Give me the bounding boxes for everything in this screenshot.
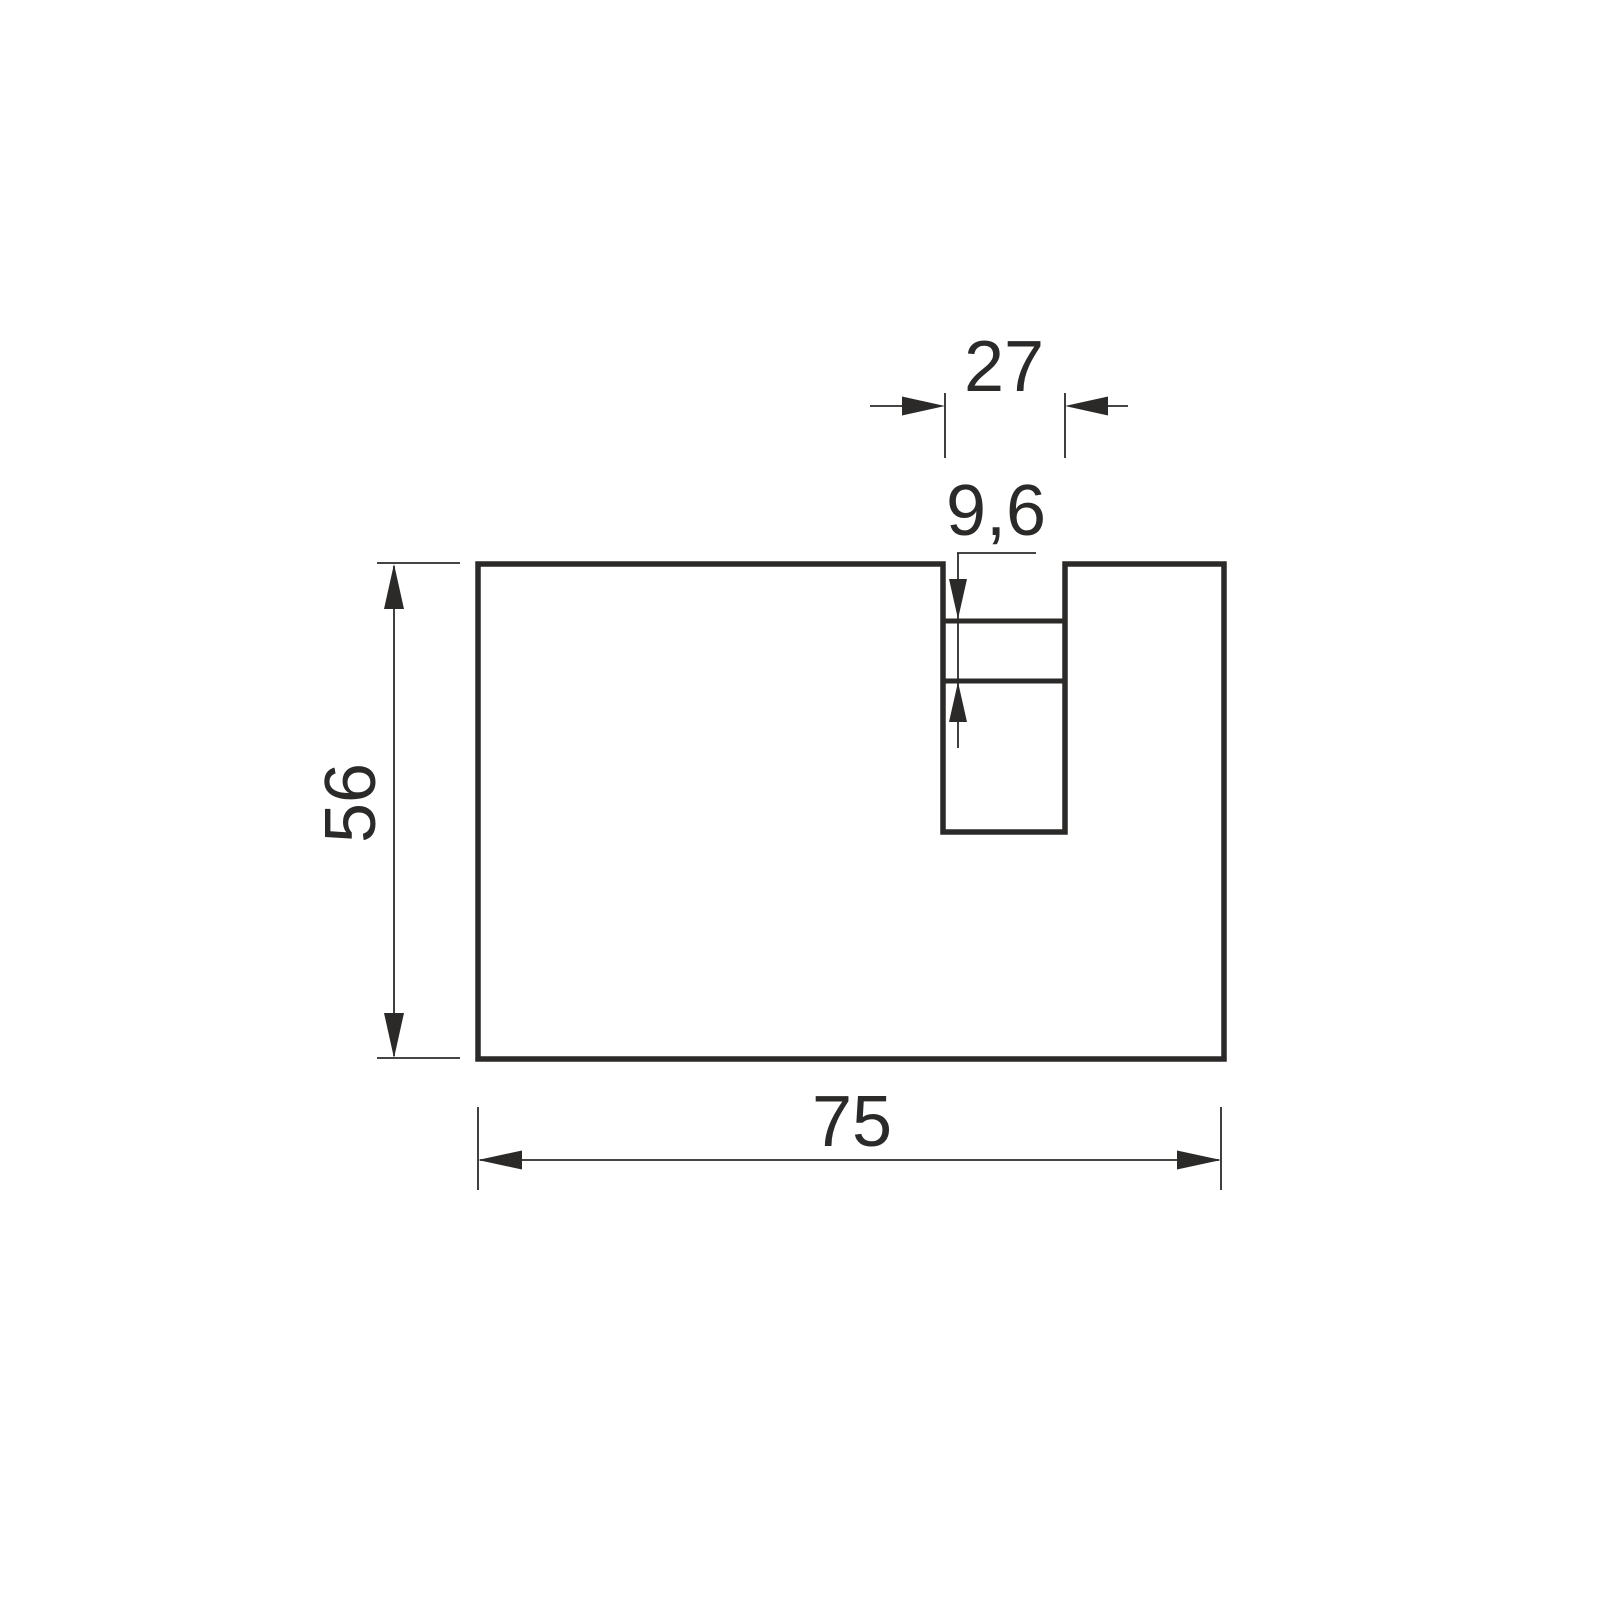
- arrowhead-left-pointing: [478, 1151, 522, 1170]
- arrowhead-down-pointing: [384, 1013, 404, 1058]
- dim-label-outer-width: 75: [812, 1082, 892, 1162]
- drawing-canvas: 27 9,6 56 75: [0, 0, 1600, 1600]
- arrowhead-right-pointing: [1177, 1151, 1221, 1170]
- dim-label-outer-height: 56: [311, 763, 391, 843]
- dimension-slot-step: 9,6: [946, 471, 1046, 748]
- dimension-slot-width: 27: [870, 327, 1128, 458]
- dim-label-slot-width: 27: [964, 327, 1044, 407]
- part-geometry: [478, 564, 1224, 1059]
- arrowhead-right-pointing: [902, 397, 945, 416]
- arrowhead-up-pointing: [384, 564, 404, 609]
- arrowhead-down-pointing: [949, 579, 967, 619]
- dimension-outer-width: 75: [478, 1082, 1221, 1190]
- arrowhead-up-pointing: [949, 682, 967, 722]
- technical-drawing: 27 9,6 56 75: [0, 0, 1600, 1600]
- dimension-outer-height: 56: [311, 563, 460, 1058]
- dim-label-slot-step: 9,6: [946, 471, 1046, 551]
- arrowhead-left-pointing: [1065, 397, 1108, 416]
- part-outline: [478, 564, 1224, 1059]
